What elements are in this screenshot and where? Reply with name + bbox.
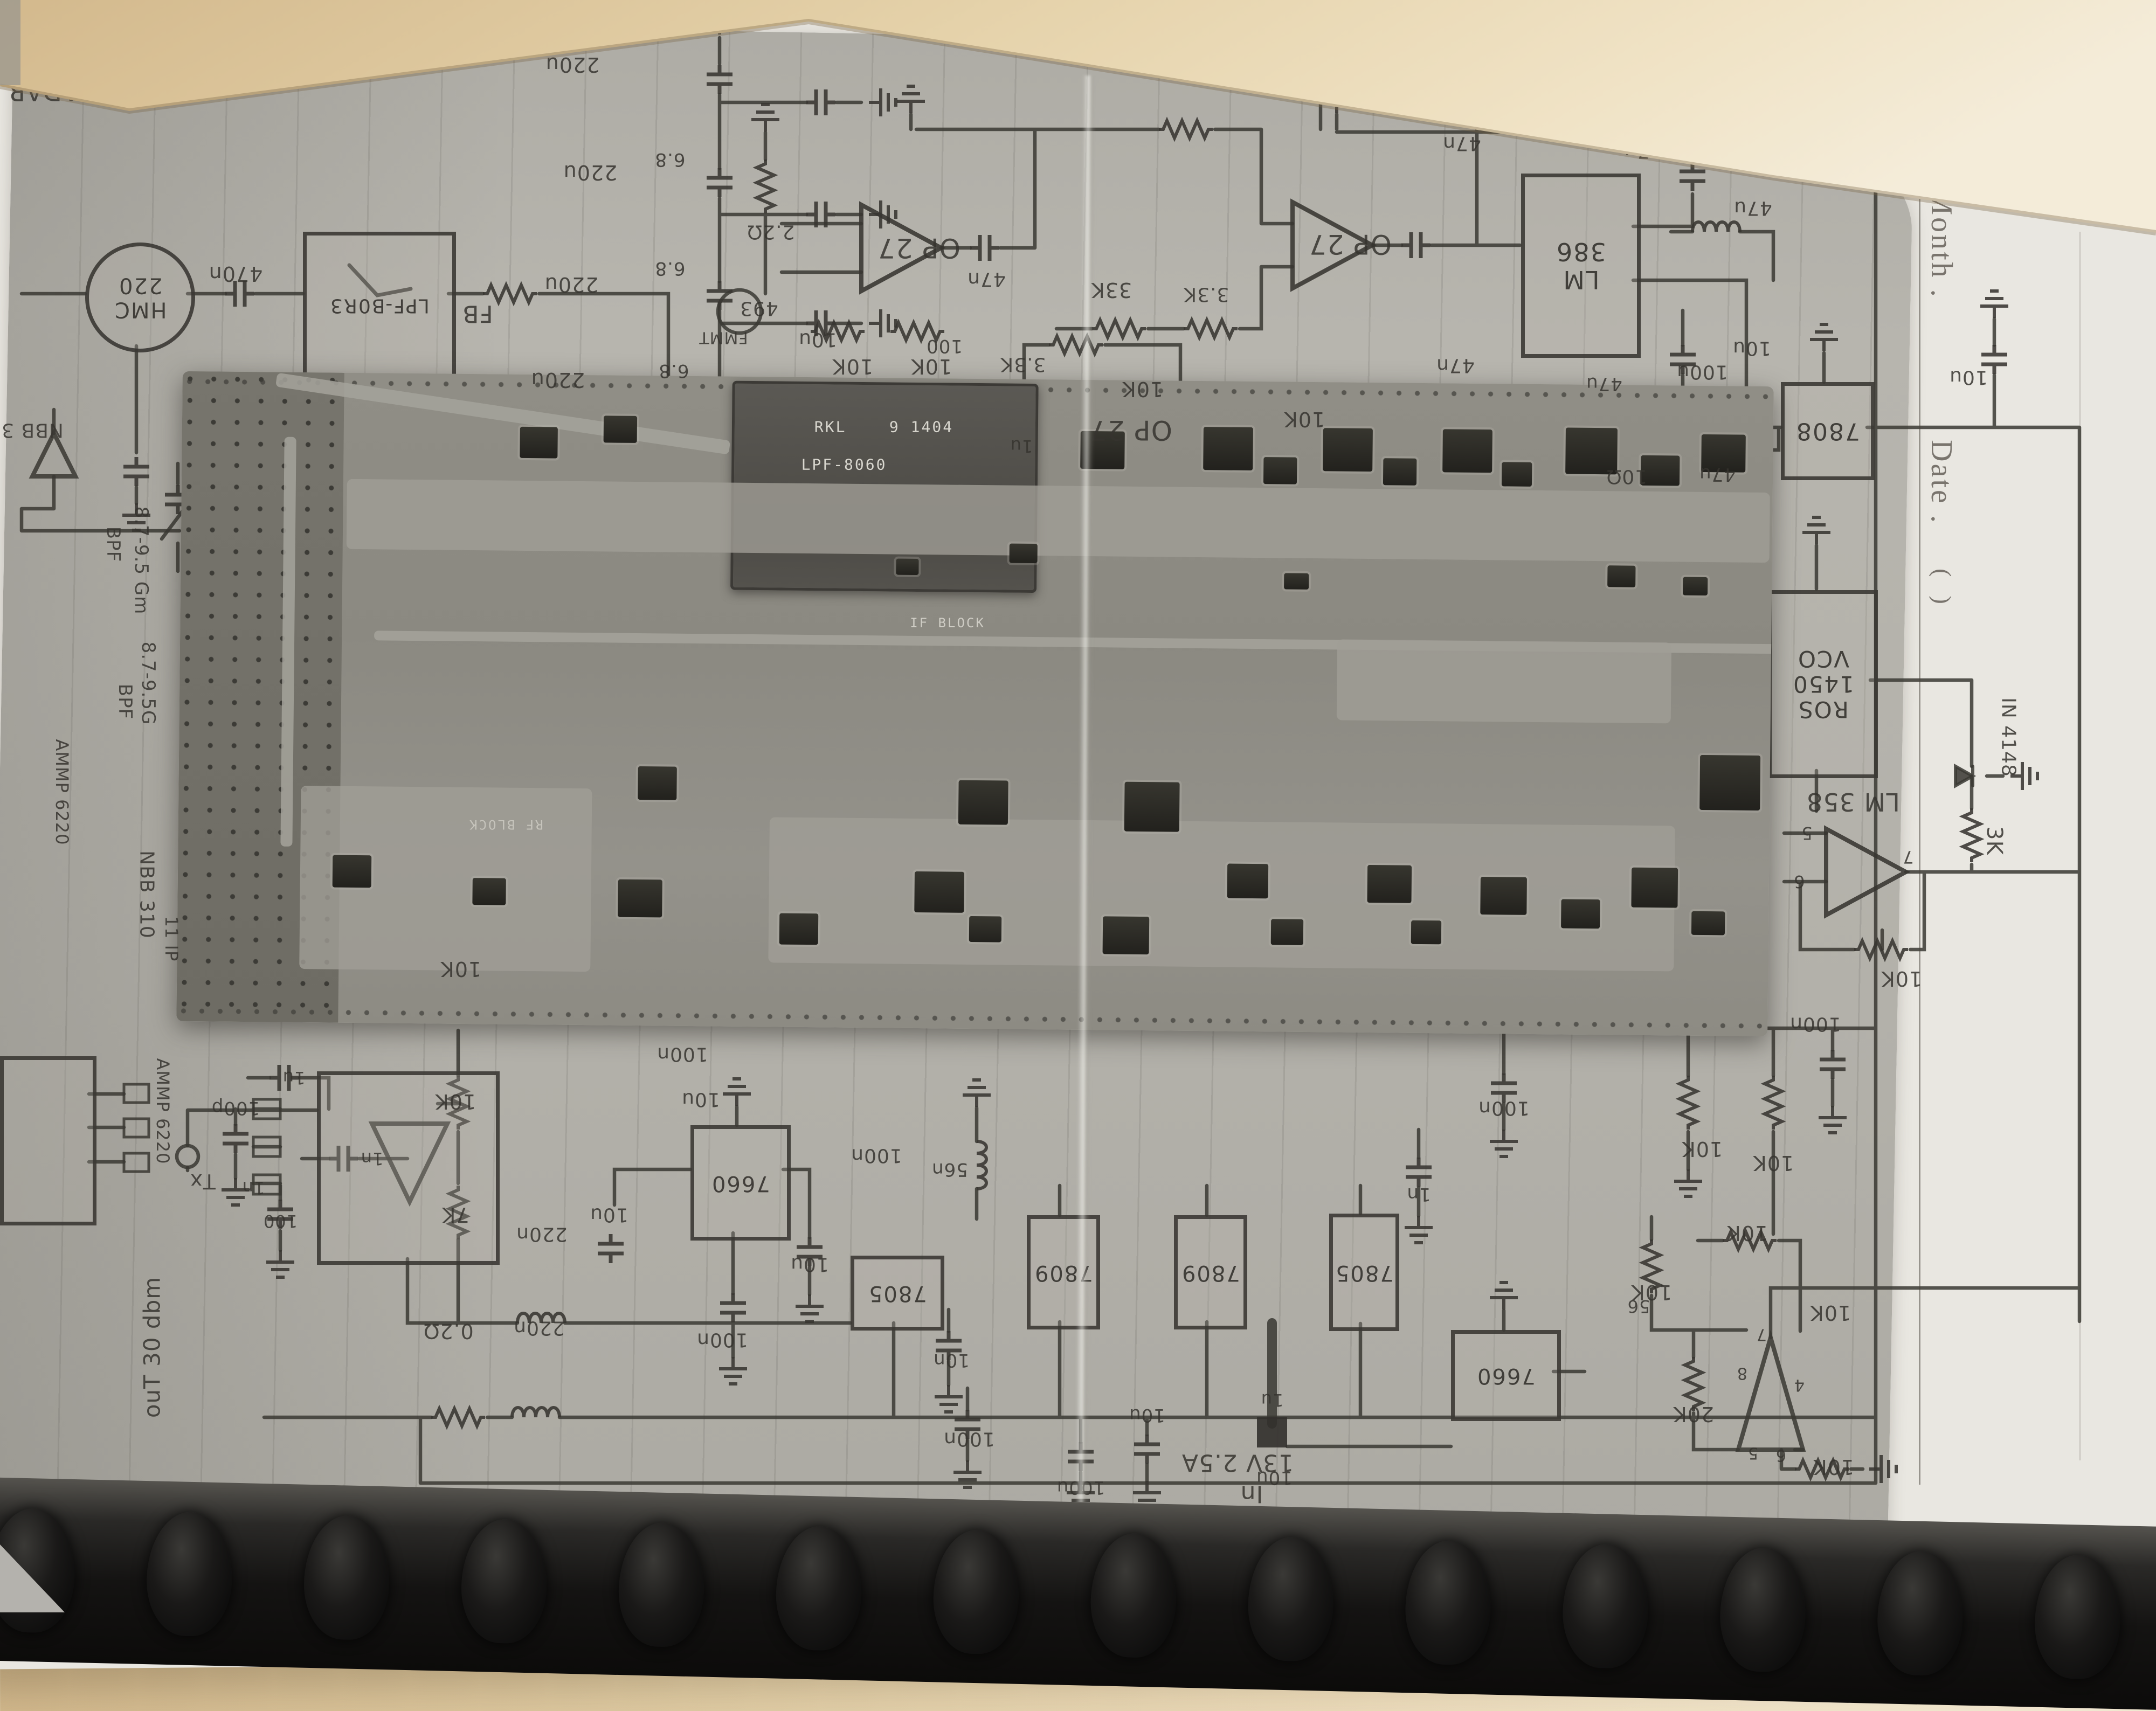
schematic-label: 10u (590, 1204, 628, 1226)
schematic-label: 20K (1673, 1402, 1714, 1426)
schematic-label: 10u (798, 329, 837, 351)
schematic-label: FMCW RADAR (8, 77, 184, 106)
schematic-label: 1n (361, 1148, 384, 1169)
schematic-label: NBB 310 (136, 850, 158, 938)
schematic-label: IN 4148 (1998, 697, 2020, 777)
schematic-label: 10Ω (1606, 466, 1647, 488)
schematic-label: OP 27 (877, 232, 960, 264)
header-rule-line (1919, 129, 1920, 1485)
schematic-label: 11 IP (161, 916, 182, 962)
schematic-label: Date . (1924, 440, 1959, 525)
schematic-label: 220u (563, 161, 618, 184)
schematic-label: ouT 30 dbm (139, 1277, 165, 1418)
schematic-label: 6.8 (654, 149, 685, 170)
schematic-label: 10K (1682, 1137, 1723, 1161)
schematic-label: BPF (114, 684, 136, 719)
schematic-label: LPF-8060 (801, 456, 887, 474)
schematic-label: 10K (911, 355, 952, 378)
schematic-label: BPF (102, 527, 124, 562)
schematic-label: RKL 9 1404 (814, 418, 953, 436)
schematic-label: 8 (1737, 1364, 1747, 1383)
schematic-label: 0.2Ω (423, 1319, 473, 1343)
schematic-label: 470n (209, 262, 263, 286)
schematic-label: 1u (1261, 1390, 1284, 1410)
schematic-label: 220u (544, 273, 599, 296)
schematic-label: 7K (441, 1203, 469, 1227)
schematic-label: 7 (1902, 847, 1913, 867)
schematic-label: 8.7-9.5 Gm (130, 507, 152, 615)
schematic-label: 6 (1775, 1446, 1786, 1465)
schematic-label: 10K (435, 1090, 476, 1113)
schematic-label: RF BLOCK (468, 817, 543, 832)
schematic-label: LM 358 (1806, 787, 1900, 816)
schematic-label: 47u (1586, 373, 1622, 394)
schematic-label: 47n (1442, 133, 1481, 155)
schematic-label: 6.8 (654, 258, 685, 279)
schematic-label: 5 (1801, 823, 1812, 843)
schematic-label: 4.7u (1624, 140, 1669, 162)
schematic-label: 220u (531, 368, 585, 392)
schematic-label: IF BLOCK (910, 615, 985, 631)
schematic-label: 56n (931, 1159, 968, 1180)
schematic-label: AMMP 6220 (153, 1058, 173, 1164)
schematic-label: 3.3K (1000, 354, 1046, 376)
schematic-label: 7 (1756, 1325, 1767, 1344)
binding-coil (460, 1518, 548, 1644)
schematic-label: 100p (211, 1097, 260, 1119)
schematic-label: 47n (967, 268, 1006, 290)
binding-coil (1876, 1550, 1964, 1677)
schematic-label: DESIGN BY : (32, 26, 189, 55)
schematic-label: 100n (1789, 1013, 1841, 1035)
schematic-label: 33K (1091, 278, 1132, 302)
schematic-label: 2.2Ω (747, 221, 795, 243)
photo-of-schematic-notebook: DESIGN BY :FMCW RADAR470nFB2.2Ω493FMMT22… (0, 0, 2156, 1612)
schematic-label: FB (462, 300, 493, 328)
binding-coil (932, 1529, 1020, 1655)
schematic-label: 47u (1699, 463, 1736, 485)
schematic-label: NBB 31 (0, 419, 64, 441)
schematic-label: 6 (1793, 871, 1805, 892)
schematic-label: 220n (513, 1317, 565, 1339)
schematic-label: 10n (933, 1349, 970, 1371)
schematic-label: 1n (1406, 1183, 1431, 1205)
schematic-label: AMMP 6220 (52, 739, 72, 845)
binding-coil (618, 1522, 706, 1648)
schematic-label: 100u (1676, 361, 1728, 383)
header-rule-line-2 (2079, 232, 2081, 1460)
schematic-label: 10K (1753, 1151, 1794, 1175)
schematic-label: 1n (242, 1177, 265, 1198)
schematic-label: 47u (1733, 197, 1772, 219)
schematic-label: OP 27 (1309, 228, 1392, 260)
schematic-label: 1u (282, 1068, 306, 1088)
schematic-label: FMMT (699, 328, 748, 347)
schematic-label: 10K (1122, 377, 1163, 401)
schematic-label: 10K (1813, 1455, 1854, 1479)
schematic-label: 56 (1627, 1296, 1650, 1317)
schematic-label: 5 (1747, 1444, 1758, 1463)
schematic-label: 10K (1727, 1221, 1768, 1245)
schematic-label: 10u (790, 1253, 829, 1276)
corner-shadow (0, 0, 20, 85)
schematic-label: OP 27 (1089, 414, 1172, 446)
binding-coil (1561, 1543, 1649, 1670)
schematic-label: 3.3K (1184, 283, 1229, 306)
schematic-label: 100n (851, 1145, 902, 1167)
schematic-label: 47n (1436, 355, 1475, 377)
schematic-label: Tx (190, 1169, 216, 1193)
schematic-label: 1u (1010, 436, 1033, 456)
schematic-label: 10K (1881, 967, 1922, 990)
binding-coil (775, 1526, 863, 1652)
schematic-label: 10u (681, 1089, 720, 1111)
schematic-label: 10K (1810, 1301, 1851, 1325)
binding-coil (1089, 1533, 1177, 1659)
schematic-label: 220u (545, 53, 600, 77)
schematic-label: Month . (1924, 188, 1959, 299)
schematic-label: 10u (1129, 1404, 1165, 1426)
schematic-label: ( ) (1929, 569, 1957, 606)
schematic-label: 10K (1284, 407, 1325, 431)
binding-coil (146, 1511, 233, 1637)
schematic-label: 10u (1256, 1467, 1293, 1488)
schematic-label: 493 (740, 297, 778, 320)
schematic-label: 100n (657, 1043, 708, 1065)
schematic-label: 10K (832, 355, 873, 378)
schematic-label: 100n (696, 1329, 748, 1351)
binding-coil (1247, 1536, 1335, 1662)
schematic-label: 3K (1982, 826, 2007, 855)
binding-coil (303, 1515, 391, 1641)
schematic-label: 4 (1794, 1376, 1805, 1395)
schematic-label: 8.7-9.5G (137, 642, 159, 725)
schematic-label: 220n (516, 1223, 568, 1245)
binding-coil (1719, 1547, 1807, 1673)
schematic-label: 10u (1732, 337, 1771, 359)
schematic-label: 100n (1478, 1097, 1530, 1119)
schematic-label: 100n (943, 1428, 995, 1450)
schematic-label: 10K (440, 957, 481, 981)
schematic-label: 100 (263, 1211, 298, 1231)
schematic-label: 10u (1949, 366, 1988, 389)
schematic-label: 6.8 (658, 360, 689, 382)
schematic-label: 100 (926, 335, 963, 357)
binding-coil (1404, 1540, 1492, 1666)
binding-coil (2034, 1554, 2122, 1680)
